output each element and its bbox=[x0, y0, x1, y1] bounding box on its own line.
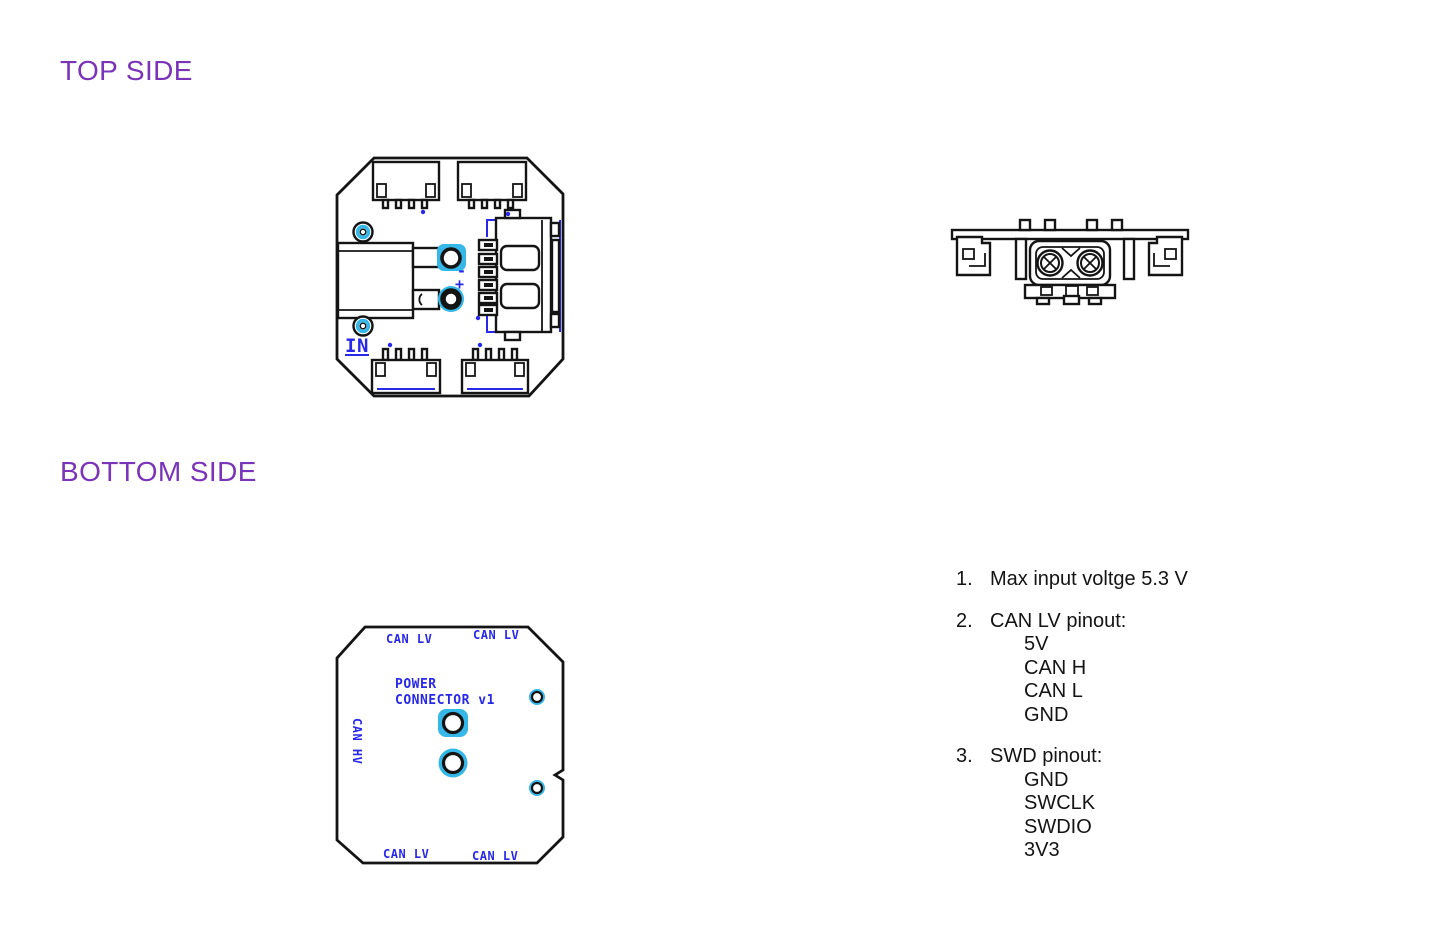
can-lv-label-top-right: CAN LV bbox=[473, 628, 519, 642]
note-number: 2. bbox=[956, 610, 990, 634]
xt30-connector-side-view bbox=[1030, 241, 1110, 285]
pinout-entry: CAN H bbox=[1024, 657, 1188, 681]
note-number: 1. bbox=[956, 568, 990, 592]
screw-terminal-right bbox=[1078, 251, 1103, 276]
power-connector-label-line2: CONNECTOR v1 bbox=[395, 693, 495, 708]
bottom-side-heading: BOTTOM SIDE bbox=[60, 456, 257, 488]
board-edge-bar bbox=[952, 230, 1188, 239]
jst-connector-top-left bbox=[373, 162, 439, 208]
power-connector-label-line1: POWER bbox=[395, 677, 437, 692]
note-item-1: 1. Max input voltge 5.3 V bbox=[956, 568, 1188, 592]
side-connector-right bbox=[1149, 237, 1182, 275]
can-lv-label-top-left: CAN LV bbox=[386, 632, 432, 646]
can-lv-label-bottom-left: CAN LV bbox=[383, 847, 429, 861]
pinout-entry: GND bbox=[1024, 769, 1188, 793]
can-hv-label-left: CAN HV bbox=[350, 718, 364, 764]
power-in-label: IN bbox=[345, 335, 369, 357]
note-item-3: 3. SWD pinout: GND SWCLK SWDIO 3V3 bbox=[956, 745, 1188, 863]
note-title: SWD pinout: bbox=[990, 745, 1102, 769]
pinout-entry: SWDIO bbox=[1024, 816, 1188, 840]
mount-rail-left bbox=[1016, 239, 1026, 279]
pinout-entry: CAN L bbox=[1024, 680, 1188, 704]
screw-terminal-left bbox=[1038, 251, 1063, 276]
top-side-heading: TOP SIDE bbox=[60, 55, 193, 87]
jst-connector-top-right bbox=[458, 162, 526, 208]
power-pad-square bbox=[438, 709, 468, 737]
pinout-entry: GND bbox=[1024, 704, 1188, 728]
xt30-housing-base bbox=[1025, 285, 1115, 304]
note-number: 3. bbox=[956, 745, 990, 769]
mounting-hole-upper-right bbox=[529, 689, 545, 705]
board-outline bbox=[337, 627, 563, 863]
note-title: Max input voltge 5.3 V bbox=[990, 568, 1188, 592]
top-side-pcb-diagram: - + IN bbox=[333, 148, 568, 398]
pinout-entry: 5V bbox=[1024, 633, 1188, 657]
mounting-hole-lower-right bbox=[529, 780, 545, 796]
note-item-2: 2. CAN LV pinout: 5V CAN H CAN L GND bbox=[956, 610, 1188, 728]
page: { "headings": { "top_side": "TOP SIDE", … bbox=[0, 0, 1445, 932]
bottom-side-pcb-diagram: CAN LV CAN LV CAN LV CAN LV CAN HV POWER… bbox=[333, 618, 568, 868]
pinout-entry: SWCLK bbox=[1024, 792, 1188, 816]
top-pins bbox=[1020, 220, 1122, 230]
note-title: CAN LV pinout: bbox=[990, 610, 1126, 634]
side-connector-left bbox=[957, 237, 990, 275]
mount-rail-right bbox=[1124, 239, 1134, 279]
can-lv-label-bottom-right: CAN LV bbox=[472, 849, 518, 863]
swd-pinout-list: GND SWCLK SWDIO 3V3 bbox=[1024, 769, 1188, 863]
can-lv-pinout-list: 5V CAN H CAN L GND bbox=[1024, 633, 1188, 727]
pinout-entry: 3V3 bbox=[1024, 839, 1188, 863]
board-side-view-diagram bbox=[938, 213, 1193, 308]
plus-polarity-label: + bbox=[455, 275, 465, 293]
mounting-hole-top bbox=[354, 223, 373, 242]
mounting-hole-bottom bbox=[354, 317, 373, 336]
notes-list: 1. Max input voltge 5.3 V 2. CAN LV pino… bbox=[956, 568, 1188, 881]
power-pad-round bbox=[439, 749, 468, 778]
